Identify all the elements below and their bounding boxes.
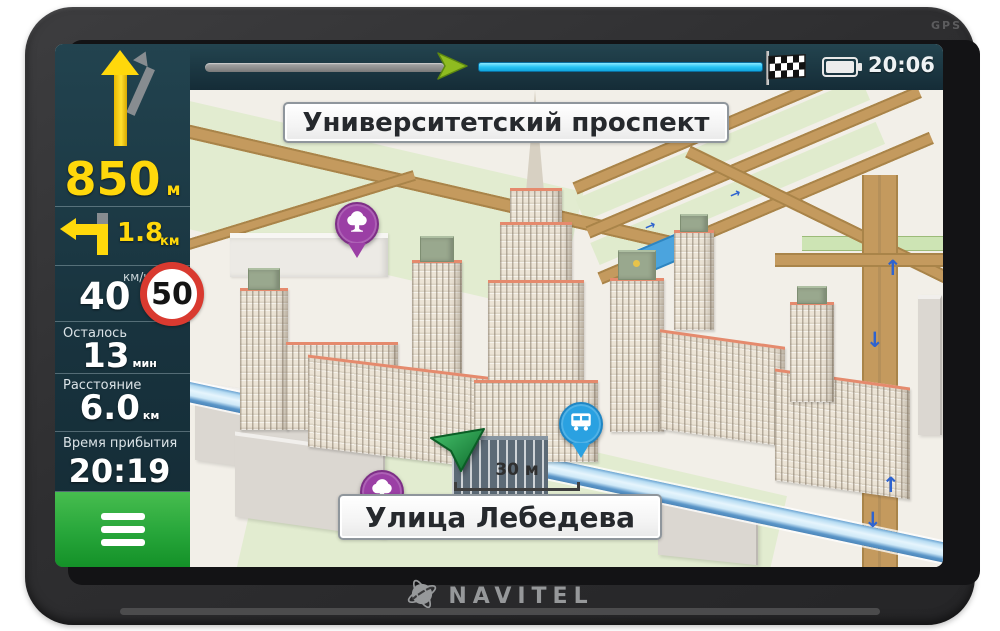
arrival-time-value: 20:19	[69, 452, 171, 490]
oneway-down-icon: ↓	[864, 510, 882, 531]
tower-roof	[248, 268, 280, 290]
speed-limit-value: 50	[151, 277, 193, 312]
progress-track-traveled	[205, 63, 445, 72]
remaining-time-value: 13	[82, 336, 129, 376]
second-maneuver-panel: 1.8 км	[55, 207, 190, 266]
arrival-time-label: Время прибытия	[63, 436, 177, 451]
straight-arrow-head-icon	[101, 50, 139, 75]
speed-limit-sign: 50	[140, 262, 204, 326]
maneuver2-distance: 1.8	[117, 218, 163, 248]
current-street-sign: Улица Лебедева	[338, 494, 662, 540]
remaining-time-panel: Осталось 13 мин	[55, 322, 190, 374]
building-tower	[610, 278, 664, 432]
battery-icon	[822, 57, 858, 77]
route-progress-bar: 20:06	[190, 44, 943, 90]
brand-name: NAVITEL	[448, 584, 593, 609]
hamburger-icon	[101, 513, 145, 520]
gps-navigator-photo: GPS	[0, 0, 1000, 631]
progress-position-arrow-icon	[436, 50, 470, 86]
left-turn-arrow-head-icon	[60, 218, 76, 240]
park-poi-pin[interactable]	[335, 202, 379, 246]
progress-track-remaining	[478, 62, 763, 72]
tower-tier	[500, 222, 572, 284]
next-street-sign: Университетский проспект	[283, 102, 729, 143]
device-bezel: GPS	[25, 7, 975, 625]
remaining-distance-value: 6.0	[80, 388, 140, 428]
tower-roof	[680, 214, 708, 232]
remaining-distance-panel: Расстояние 6.0 км	[55, 374, 190, 432]
arrival-time-panel: Время прибытия 20:19	[55, 432, 190, 492]
road	[775, 253, 943, 267]
maneuver2-unit: км	[160, 234, 179, 249]
building-tower	[674, 230, 714, 330]
tower-clock	[633, 260, 640, 267]
menu-button[interactable]	[55, 492, 190, 567]
tower-roof	[797, 286, 827, 304]
tree-icon	[344, 209, 370, 239]
map-view[interactable]: ↑ ↓ ↑ ↓ → → 30 м Университетский проспек…	[190, 90, 943, 567]
building-wing	[660, 329, 785, 447]
hamburger-icon	[101, 539, 145, 546]
remaining-distance-unit: км	[143, 409, 159, 422]
tower-tier	[510, 188, 562, 226]
clock: 20:06	[868, 53, 935, 77]
map-scale-label: 30 м	[452, 460, 582, 480]
oneway-down-icon: ↓	[866, 330, 884, 351]
device-bottom-edge	[120, 608, 880, 615]
map-scale-bracket	[454, 482, 580, 491]
main-tower	[488, 280, 584, 392]
left-turn-arrow-icon	[75, 224, 103, 235]
menu-section	[55, 492, 190, 567]
straight-arrow-icon	[114, 72, 127, 146]
screen: ↑ ↓ ↑ ↓ → → 30 м Университетский проспек…	[55, 44, 943, 567]
gps-model-label: GPS	[931, 19, 962, 32]
oneway-up-icon: ↑	[882, 475, 900, 496]
next-street-name: Университетский проспект	[302, 108, 709, 138]
remaining-time-unit: мин	[133, 357, 157, 370]
building-tower	[240, 288, 288, 430]
transport-poi-pin[interactable]	[559, 402, 603, 446]
bus-icon	[568, 409, 594, 439]
maneuver1-distance: 850	[65, 152, 161, 206]
speed-value: 40	[79, 275, 131, 318]
oneway-up-icon: ↑	[884, 258, 902, 279]
tower-roof	[420, 236, 454, 262]
building-tower	[790, 302, 834, 402]
finish-flag-icon	[762, 49, 808, 91]
current-street-name: Улица Лебедева	[365, 501, 635, 534]
maneuver1-unit: м	[167, 180, 181, 200]
building-block	[918, 295, 942, 435]
hamburger-icon	[101, 526, 145, 533]
next-maneuver-panel: 850 м	[55, 44, 190, 207]
